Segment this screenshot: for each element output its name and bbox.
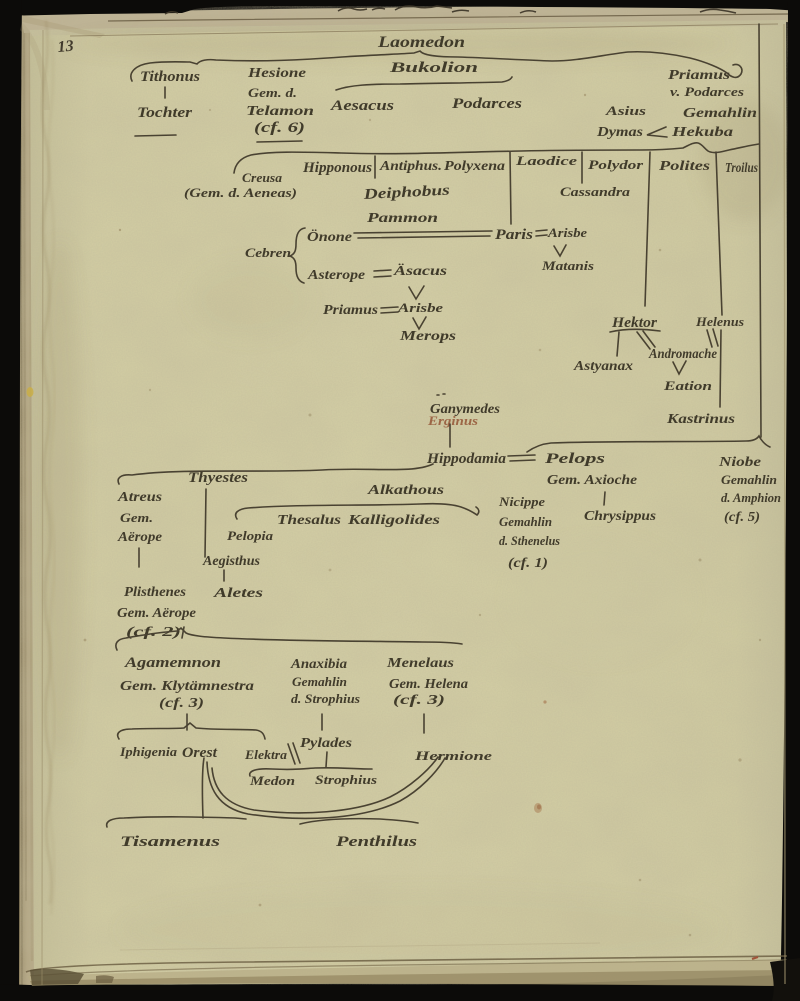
svg-text:Aletes: Aletes xyxy=(213,586,264,601)
svg-text:Tisamenus: Tisamenus xyxy=(120,834,220,850)
svg-text:Strophius: Strophius xyxy=(315,772,377,787)
svg-text:Tochter: Tochter xyxy=(137,105,192,121)
svg-text:Troilus: Troilus xyxy=(725,161,758,176)
svg-text:Önone: Önone xyxy=(307,228,352,245)
svg-text:Podarces: Podarces xyxy=(452,96,522,112)
svg-text:d. Sthenelus: d. Sthenelus xyxy=(499,533,560,548)
svg-text:(cf. 2): (cf. 2) xyxy=(126,625,181,640)
svg-text:Pammon: Pammon xyxy=(367,211,438,226)
svg-text:Penthilus: Penthilus xyxy=(336,834,417,850)
svg-text:Gem. d.: Gem. d. xyxy=(248,85,297,100)
svg-text:Polyxena: Polyxena xyxy=(444,159,505,174)
svg-text:(cf. 3): (cf. 3) xyxy=(159,696,204,711)
svg-text:Atreus: Atreus xyxy=(117,490,163,505)
svg-text:Hippodamia: Hippodamia xyxy=(426,451,507,467)
svg-text:Hekuba: Hekuba xyxy=(671,125,733,140)
svg-text:v. Podarces: v. Podarces xyxy=(670,84,744,99)
svg-text:Telamon: Telamon xyxy=(246,104,314,119)
svg-text:Laomedon: Laomedon xyxy=(377,34,465,51)
svg-text:d. Amphion: d. Amphion xyxy=(721,490,781,505)
svg-text:Gem. Helena: Gem. Helena xyxy=(389,677,468,692)
svg-text:Polydor: Polydor xyxy=(588,157,644,172)
svg-text:Gemahlin: Gemahlin xyxy=(292,674,347,689)
svg-text:Pylades: Pylades xyxy=(300,736,353,751)
svg-text:Eation: Eation xyxy=(663,378,712,393)
svg-text:Niobe: Niobe xyxy=(718,455,761,470)
svg-text:Cebren: Cebren xyxy=(245,245,291,260)
svg-text:Elektra: Elektra xyxy=(244,747,288,762)
svg-text:Hesione: Hesione xyxy=(247,66,306,81)
svg-text:Gemahlin: Gemahlin xyxy=(683,106,757,121)
svg-text:Asius: Asius xyxy=(605,103,646,118)
svg-text:Merops: Merops xyxy=(399,329,457,344)
svg-text:Arisbe: Arisbe xyxy=(547,225,587,240)
svg-text:Kalligolides: Kalligolides xyxy=(347,513,441,528)
svg-text:(cf. 5): (cf. 5) xyxy=(724,510,760,525)
svg-text:d. Strophius: d. Strophius xyxy=(291,691,360,706)
svg-text:Nicippe: Nicippe xyxy=(498,494,545,509)
svg-text:Priamus: Priamus xyxy=(668,68,731,83)
svg-text:Thyestes: Thyestes xyxy=(188,470,248,486)
svg-text:Pelopia: Pelopia xyxy=(227,528,274,543)
svg-text:Medon: Medon xyxy=(249,773,295,788)
svg-text:Menelaus: Menelaus xyxy=(386,656,455,671)
svg-text:Cassandra: Cassandra xyxy=(560,184,631,199)
svg-text:Antiphus.: Antiphus. xyxy=(379,159,442,174)
svg-text:Laodice: Laodice xyxy=(515,153,578,168)
svg-text:Paris: Paris xyxy=(495,227,533,243)
svg-text:Alkathous: Alkathous xyxy=(367,483,445,498)
svg-text:Kastrinus: Kastrinus xyxy=(666,412,736,427)
svg-text:Chrysippus: Chrysippus xyxy=(584,509,657,524)
svg-text:Äsacus: Äsacus xyxy=(393,263,448,279)
svg-text:Gemahlin: Gemahlin xyxy=(499,514,552,529)
svg-text:Polites: Polites xyxy=(659,159,711,174)
svg-text:Aërope: Aërope xyxy=(117,530,162,545)
svg-text:Gemahlin: Gemahlin xyxy=(721,472,777,487)
svg-text:Arisbe: Arisbe xyxy=(397,300,444,315)
svg-text:Thesalus: Thesalus xyxy=(277,513,342,528)
svg-text:Agamemnon: Agamemnon xyxy=(124,655,221,671)
svg-text:Plisthenes: Plisthenes xyxy=(124,585,187,600)
svg-text:Hipponous: Hipponous xyxy=(302,160,372,176)
svg-text:(Gem. d. Aeneas): (Gem. d. Aeneas) xyxy=(184,185,297,200)
svg-text:Orest: Orest xyxy=(182,745,218,761)
svg-text:Iphigenia: Iphigenia xyxy=(119,744,178,759)
svg-text:(cf. 1): (cf. 1) xyxy=(508,556,548,571)
svg-text:Hermione: Hermione xyxy=(414,748,493,763)
svg-text:Matanis: Matanis xyxy=(541,258,594,273)
svg-text:Creusa: Creusa xyxy=(242,170,283,185)
svg-text:Gem. Axioche: Gem. Axioche xyxy=(547,473,637,488)
svg-text:Astyanax: Astyanax xyxy=(573,359,633,374)
svg-text:Aesacus: Aesacus xyxy=(330,98,394,114)
svg-text:Helenus: Helenus xyxy=(695,314,744,329)
svg-text:Andromache: Andromache xyxy=(648,347,717,362)
svg-text:Anaxibia: Anaxibia xyxy=(290,657,347,672)
svg-text:Aegisthus: Aegisthus xyxy=(202,554,261,569)
svg-text:Gem.: Gem. xyxy=(120,510,153,525)
svg-text:(cf. 3): (cf. 3) xyxy=(393,693,445,708)
svg-text:Tithonus: Tithonus xyxy=(140,69,200,85)
svg-text:Gem. Aërope: Gem. Aërope xyxy=(117,606,196,621)
svg-text:Pelops: Pelops xyxy=(545,451,605,467)
svg-text:Asterope: Asterope xyxy=(307,268,365,283)
svg-text:(cf. 6): (cf. 6) xyxy=(254,120,305,136)
svg-text:Erginus: Erginus xyxy=(427,413,478,428)
svg-text:Dymas: Dymas xyxy=(596,125,644,140)
svg-text:Priamus: Priamus xyxy=(323,303,379,318)
svg-text:13: 13 xyxy=(57,38,74,56)
svg-text:Gem. Klytämnestra: Gem. Klytämnestra xyxy=(120,679,254,694)
svg-text:Bukolion: Bukolion xyxy=(388,60,478,76)
